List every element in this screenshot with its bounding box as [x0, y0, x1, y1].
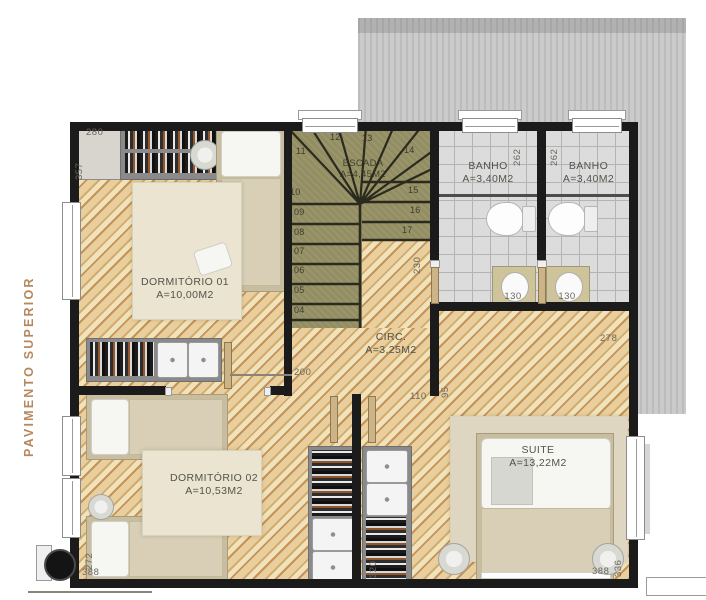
- banho1-window: [462, 118, 518, 133]
- room-name: CIRC.: [348, 331, 434, 344]
- banho2-toilet: [548, 202, 586, 236]
- banho1-shower-screen: [437, 194, 538, 197]
- room-area: A=3,40M2: [439, 173, 537, 186]
- dim-stair-void: 230: [412, 240, 423, 274]
- stair-step-number: 08: [294, 227, 305, 237]
- wall-dorm1-stairs: [284, 122, 292, 396]
- room-area: A=13,22M2: [478, 457, 598, 470]
- dim-suite-width: 388: [592, 566, 609, 577]
- room-area: A=4,45M2: [318, 169, 408, 180]
- escada-label: ESCADA A=4,45M2: [318, 158, 408, 181]
- room-name: ESCADA: [318, 158, 408, 169]
- dorm1-window: [62, 202, 81, 300]
- dim-suite-top: 278: [600, 333, 617, 344]
- dorm2-label: DORMITÓRIO 02 A=10,53M2: [142, 472, 286, 498]
- wall-dorm1-bottom-b: [270, 386, 292, 395]
- wall-banho1-left: [430, 122, 439, 266]
- dim-banho1-depth: 262: [512, 132, 523, 166]
- dresser-door: [157, 342, 188, 378]
- floorplan-canvas: PAVIMENTO SUPERIOR: [0, 0, 706, 600]
- dim-suite-depth: 336: [613, 541, 624, 577]
- banho2-toilet-tank: [584, 206, 598, 232]
- dim-dorm2-width: 388: [82, 567, 99, 578]
- stair-step-number: 05: [294, 285, 305, 295]
- stair-step-number: 15: [408, 185, 419, 195]
- banho2-door: [538, 267, 546, 304]
- dresser-door: [188, 342, 219, 378]
- dorm2-stool: [88, 494, 114, 520]
- room-name: DORMITÓRIO 02: [142, 472, 286, 485]
- circ-label: CIRC. A=3,25M2: [348, 331, 434, 357]
- banho2-window: [572, 118, 622, 133]
- suite-label: SUITE A=13,22M2: [478, 444, 598, 470]
- suite-door: [368, 396, 376, 443]
- door-jamb: [264, 387, 271, 396]
- stair-step-number: 11: [296, 146, 306, 156]
- dorm1-label: DORMITÓRIO 01 A=10,00M2: [118, 276, 252, 302]
- wardrobe-clothes: [312, 450, 352, 516]
- room-area: A=3,40M2: [546, 173, 631, 186]
- dim-suite-closet: 320: [368, 546, 379, 578]
- wardrobe-door: [366, 450, 408, 483]
- wall-dorm2-suite: [352, 394, 361, 588]
- stair-step-number: 10: [290, 187, 301, 197]
- wall-dorm1-bottom-a: [70, 386, 166, 395]
- bed-pillow: [221, 131, 281, 177]
- banho1-toilet: [486, 202, 524, 236]
- dim-banho1-vanity: 130: [492, 291, 534, 302]
- dim-dorm1-width: 280: [86, 127, 103, 138]
- banho2-shower-screen: [544, 194, 631, 197]
- bed-blanket: [129, 399, 223, 455]
- dim-line-bottom: [28, 591, 152, 593]
- room-area: A=10,00M2: [118, 289, 252, 302]
- dim-circ-depth: 95: [440, 370, 451, 398]
- dim-dorm1-depth: 357: [74, 142, 85, 180]
- wall-banho-divider: [537, 122, 546, 266]
- room-area: A=10,53M2: [142, 485, 286, 498]
- wardrobe-door: [312, 518, 354, 551]
- dim-line: [230, 374, 292, 376]
- room-name: SUITE: [478, 444, 598, 457]
- dorm2-window-2: [62, 478, 81, 538]
- dim-circ-door: 110: [410, 391, 427, 402]
- banho1-toilet-tank: [522, 206, 536, 232]
- stair-step-number: 16: [410, 205, 421, 215]
- stairs-window: [302, 118, 358, 133]
- wardrobe-door: [366, 483, 408, 516]
- door-jamb: [165, 387, 172, 396]
- stair-step-number: 14: [404, 145, 415, 155]
- stair-step-number: 13: [362, 133, 373, 143]
- column-marker: [44, 549, 76, 581]
- stair-step-number: 06: [294, 265, 305, 275]
- wall-banho-bottom: [430, 302, 638, 311]
- bed-blanket: [481, 508, 611, 574]
- floor-title: PAVIMENTO SUPERIOR: [16, 242, 42, 492]
- room-area: A=3,25M2: [348, 344, 434, 357]
- bed-pillow: [91, 399, 129, 455]
- dorm1-dresser: [86, 338, 222, 382]
- stair-step-number: 17: [402, 225, 413, 235]
- room-name: DORMITÓRIO 01: [118, 276, 252, 289]
- suite-window: [626, 436, 645, 540]
- terrace-edge: [646, 577, 706, 596]
- dim-circ-length: 200: [294, 367, 311, 378]
- stair-step-number: 09: [294, 207, 305, 217]
- dim-banho2-vanity: 130: [546, 291, 588, 302]
- dim-dorm2-depth: 272: [84, 534, 95, 570]
- dim-banho2-depth: 262: [549, 132, 560, 166]
- dorm2-door: [330, 396, 338, 443]
- stair-step-number: 04: [294, 305, 305, 315]
- dorm1-door: [224, 342, 232, 389]
- banho1-door: [431, 267, 439, 304]
- stair-step-number: 07: [294, 246, 305, 256]
- stair-step-number: 12: [330, 132, 341, 142]
- dresser-clothes: [90, 342, 154, 376]
- suite-nightstand-left: [438, 543, 470, 575]
- dorm2-window-1: [62, 416, 81, 476]
- dorm2-wardrobe: [308, 446, 358, 588]
